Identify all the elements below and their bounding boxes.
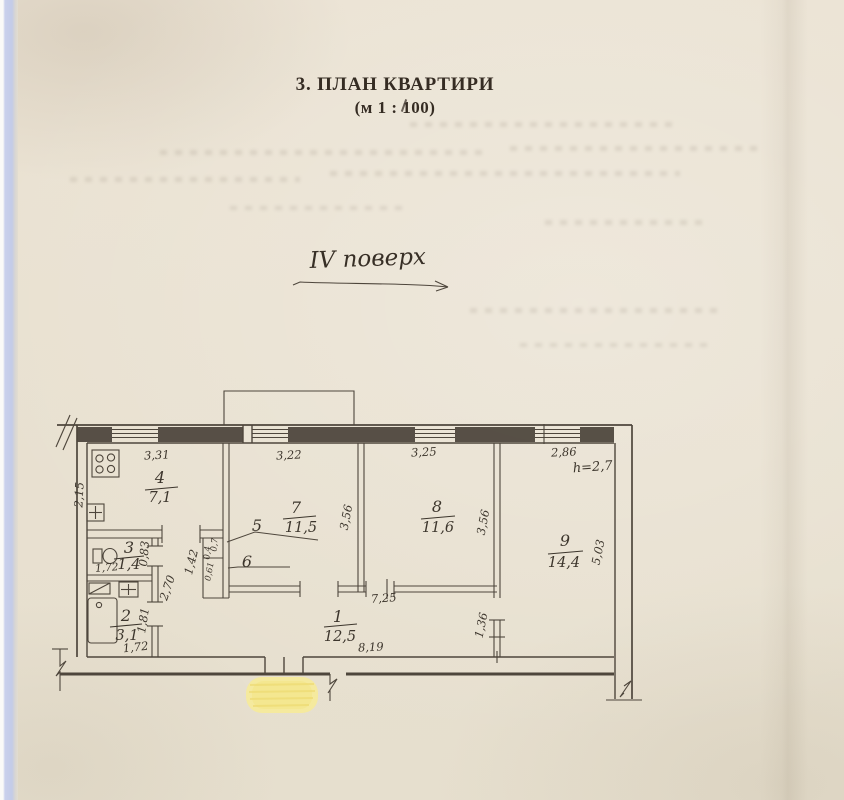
dim-top-room8: 3,25 (411, 444, 437, 459)
stove-icon (92, 450, 119, 477)
window-room9 (535, 424, 580, 444)
room-7-number: 7 (291, 498, 302, 517)
room-8-label: 8 11,6 (421, 497, 455, 536)
dim-room8-left: 3,56 (337, 503, 356, 531)
dim-closet-bottom: 0,61 (203, 561, 216, 581)
room-9-area: 14,4 (548, 555, 580, 571)
room-8-area: 11,6 (422, 520, 454, 536)
highlight-marker (246, 677, 318, 713)
window-balcony (252, 430, 288, 438)
balcony-door (243, 425, 252, 443)
kitchen-sink-icon (87, 504, 104, 521)
room-7-area: 11,5 (285, 520, 317, 536)
room-2-number: 2 (120, 606, 131, 625)
dim-niche-side: 1,36 (472, 611, 491, 639)
room-9-number: 9 (560, 531, 570, 550)
ceiling-height-note: h=2,7 (572, 459, 614, 477)
scanned-page: 3. ПЛАН КВАРТИРИ (м 1 : 100) IV поверх (0, 0, 844, 800)
room-7-label: 7 11,5 (283, 498, 317, 536)
room-8-number: 8 (432, 497, 442, 516)
wall-room7-room8 (358, 443, 364, 592)
dim-room9-side: 5,03 (589, 538, 608, 566)
wall-room9-left (489, 443, 505, 663)
wall-wc-bath (87, 575, 152, 581)
room-9-label: 9 14,4 (548, 531, 583, 571)
dim-wc-width: 1,72 (95, 561, 119, 575)
entrance-door (265, 657, 303, 674)
wall-rooms-hall (229, 579, 497, 599)
washbasin-icon (89, 583, 110, 594)
room-3-number: 3 (124, 538, 134, 557)
window-room8 (415, 430, 455, 438)
dim-closet-height: 1,42 (181, 548, 201, 576)
floor-note-text: IV поверх (308, 244, 426, 274)
dim-hall-top: 7,25 (370, 590, 397, 606)
wall-kitchen-room7 (223, 443, 229, 598)
room-6-number: 6 (242, 552, 252, 571)
floor-plan-drawing: IV поверх (0, 0, 844, 800)
dim-room8-right: 3,56 (474, 508, 493, 536)
window-kitchen (112, 430, 158, 438)
room-4-number: 4 (154, 468, 165, 487)
room-1-area: 12,5 (324, 629, 356, 645)
dim-bath-width: 1,72 (122, 639, 149, 656)
dim-bath-side: 1,81 (134, 607, 152, 634)
room-6-leader (228, 567, 290, 568)
room-4-label: 4 7,1 (145, 468, 178, 506)
balcony-outline (224, 391, 354, 425)
dim-top-room9: 2,86 (550, 444, 577, 459)
room-labels: 1 12,5 2 3,1 3 1,4 4 7,1 5 (110, 468, 583, 645)
room-6-label: 6 (228, 552, 290, 571)
dim-top-kitchen: 3,31 (144, 447, 170, 462)
room-4-area: 7,1 (148, 490, 171, 506)
room-1-number: 1 (333, 607, 343, 626)
dim-hall-bottom: 8,19 (358, 639, 384, 654)
dim-top-room7: 3,22 (276, 447, 302, 462)
floor-note: IV поверх (293, 244, 448, 291)
dim-kitchen-side: 2,15 (71, 482, 86, 509)
room-1-label: 1 12,5 (324, 607, 357, 645)
floor-note-underline (293, 282, 448, 287)
bath-sink-icon (119, 582, 138, 597)
dim-closet-top-b: 0,4 (203, 546, 214, 560)
dim-wc-side: 0,83 (136, 540, 152, 567)
bathtub-icon (88, 598, 117, 643)
dim-corridor-height: 2,70 (156, 573, 178, 603)
